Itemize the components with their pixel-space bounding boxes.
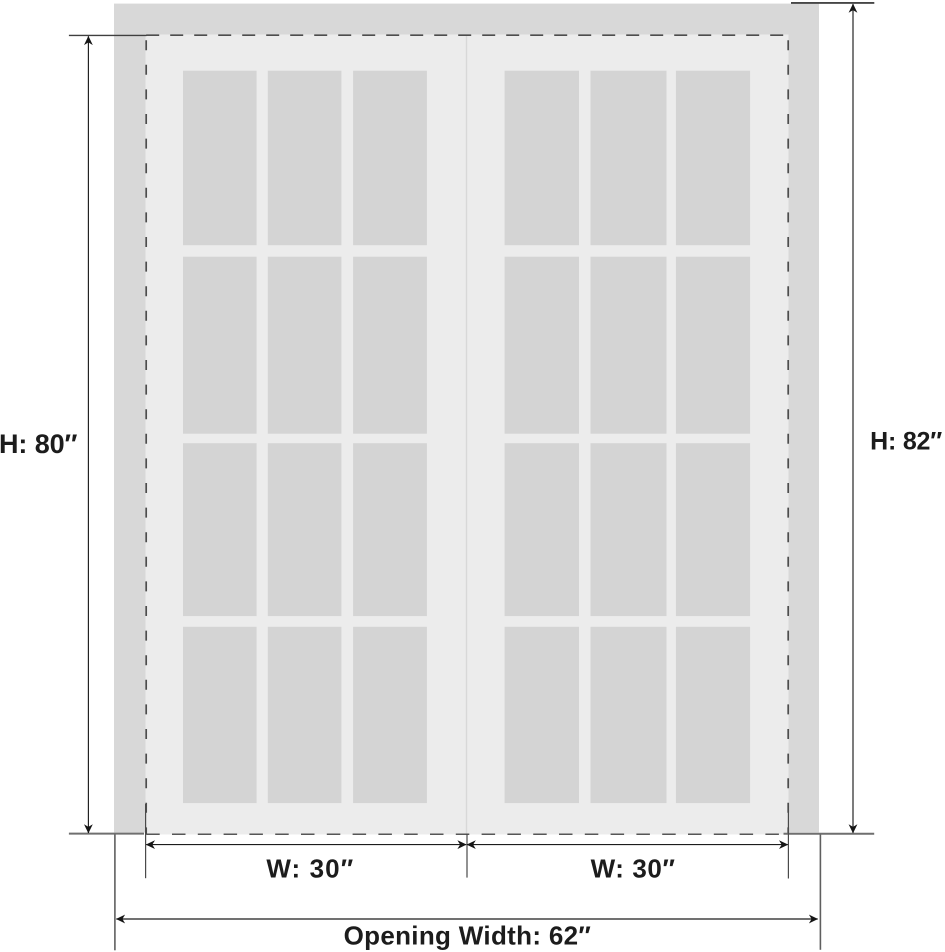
svg-text:H: 80″: H: 80″ — [0, 429, 78, 459]
svg-text:Opening Width: 62″: Opening Width: 62″ — [344, 921, 592, 951]
svg-text:W: 30″: W: 30″ — [266, 853, 354, 883]
svg-text:H: 82″: H: 82″ — [870, 428, 942, 456]
svg-text:W: 30″: W: 30″ — [591, 853, 676, 883]
